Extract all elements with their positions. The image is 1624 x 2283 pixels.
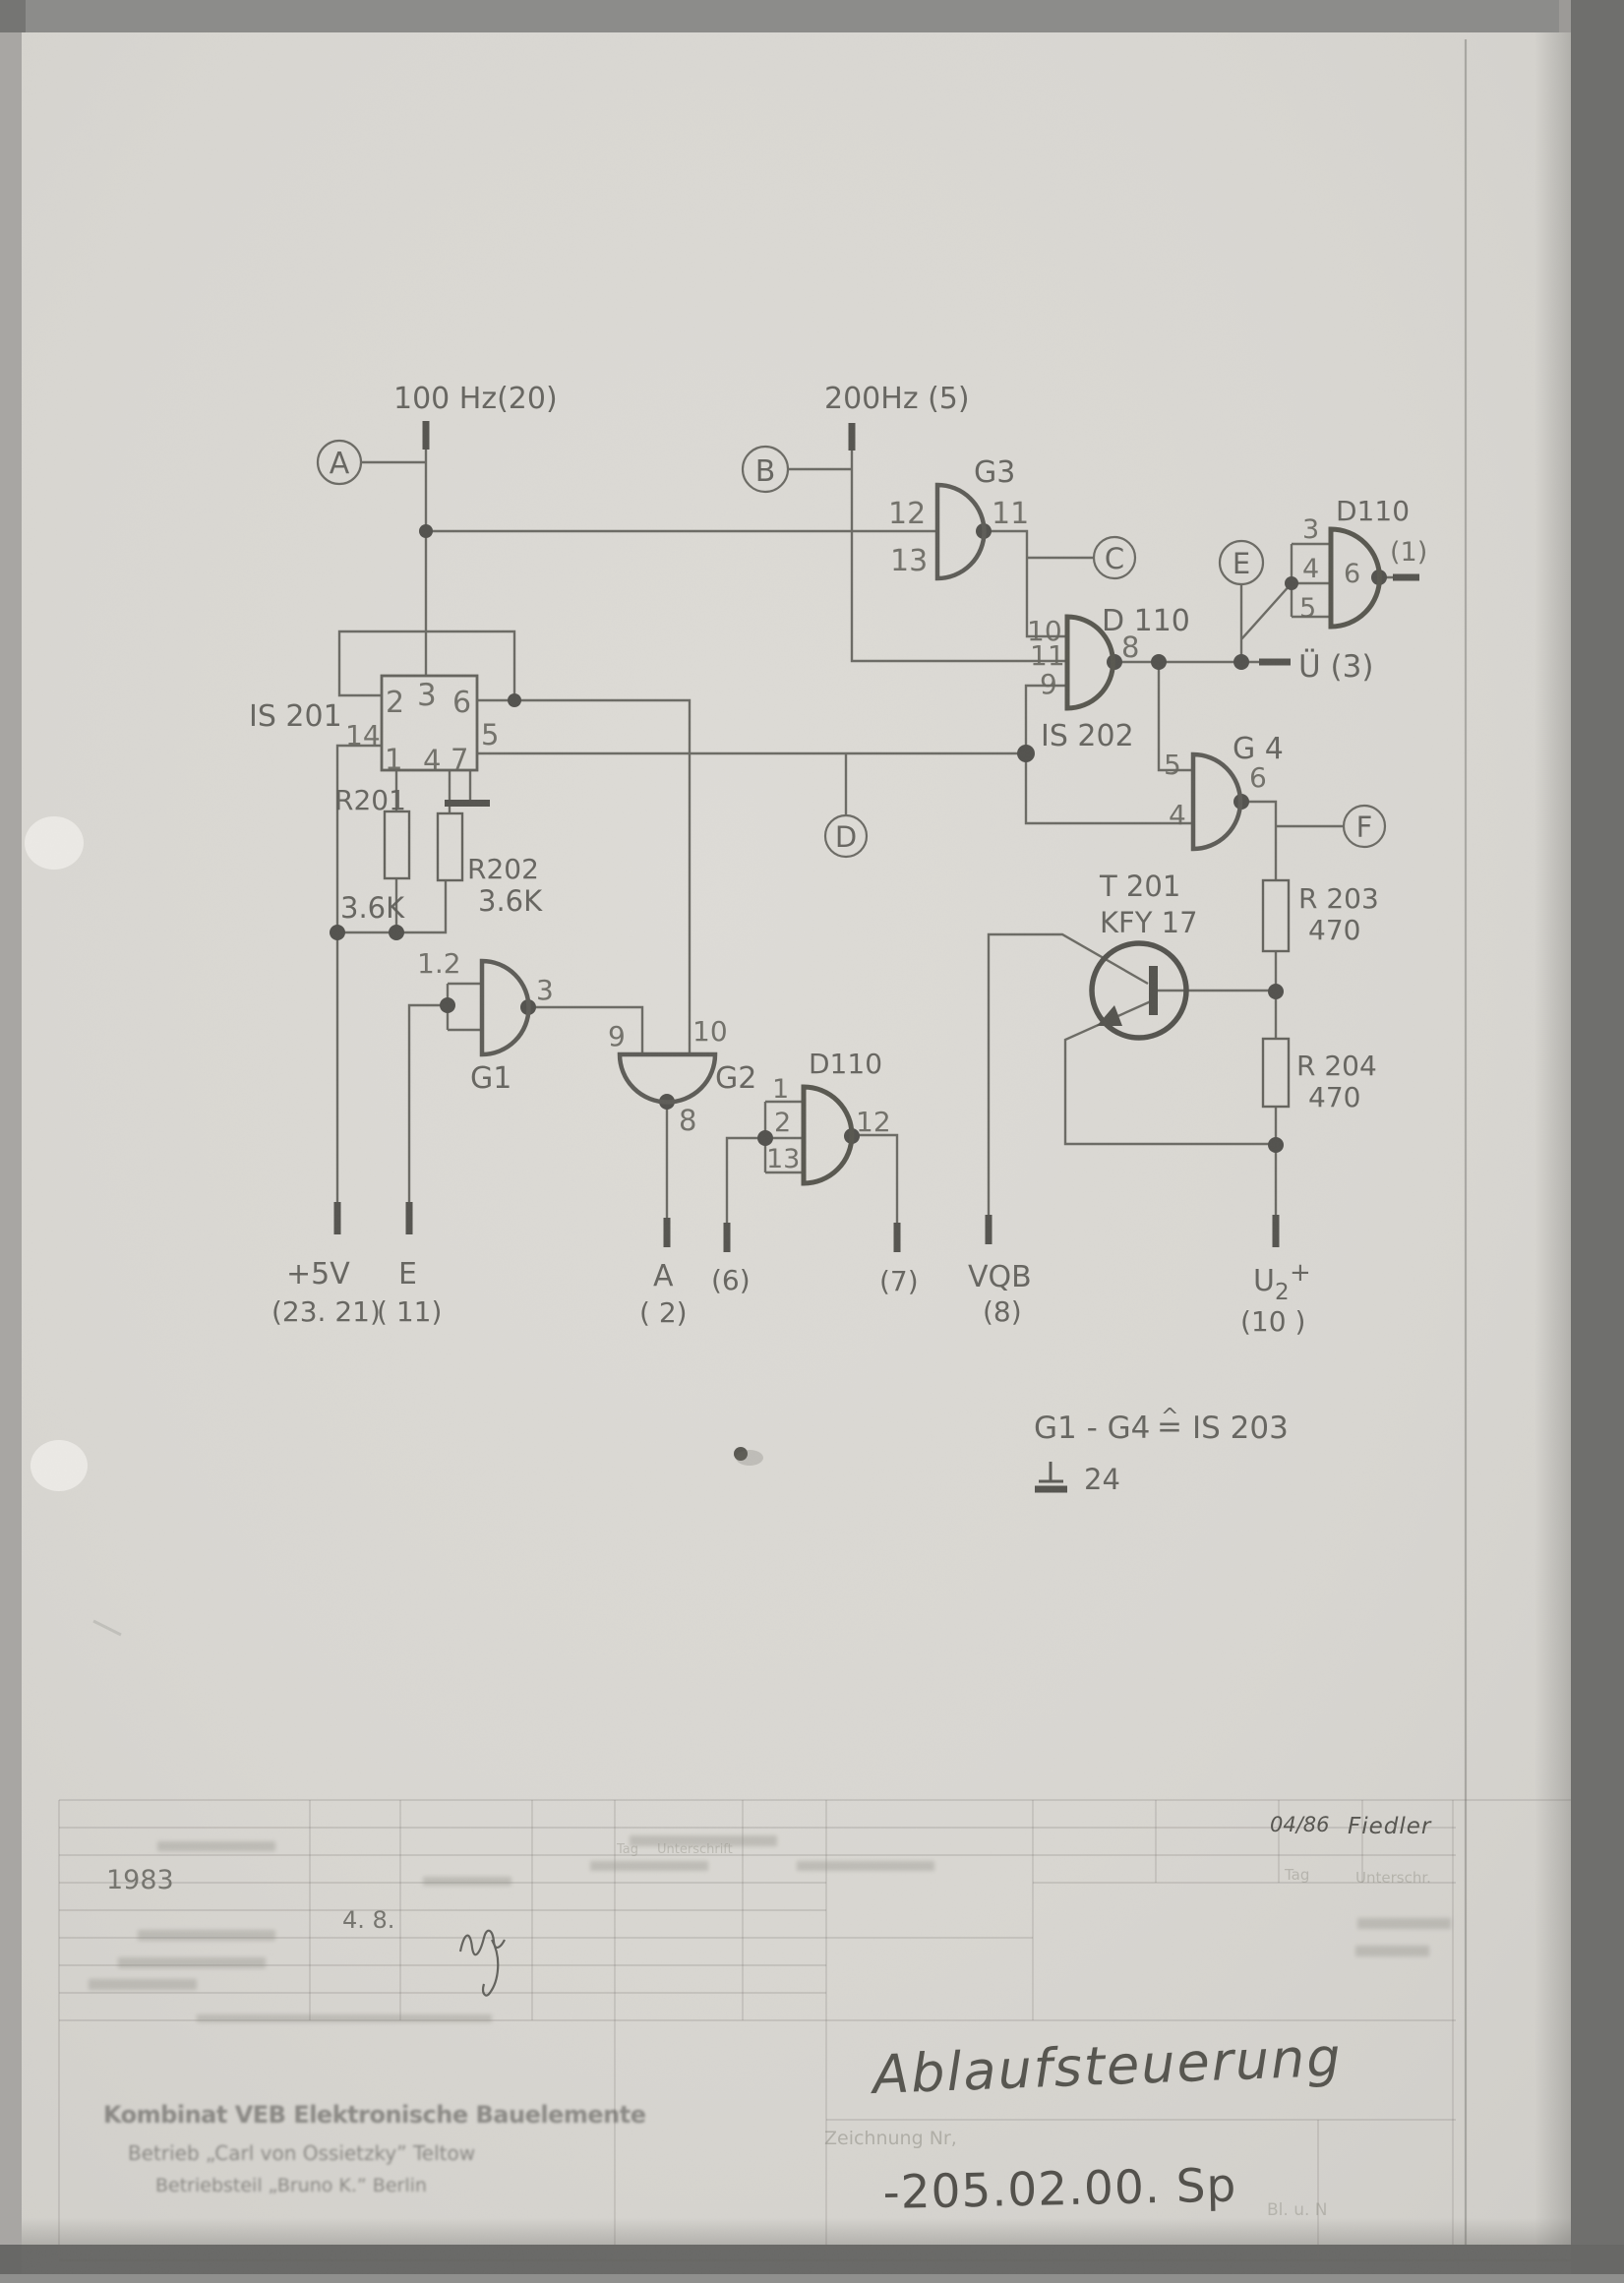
paper-grain-overlay: [22, 32, 1571, 2274]
schematic-canvas: 100 Hz(20) 200Hz (5) A B C D E F G3 12 1…: [0, 0, 1624, 2283]
scan-bottom-strip: [0, 2274, 1624, 2283]
scanned-schematic-page: 100 Hz(20) 200Hz (5) A B C D E F G3 12 1…: [0, 0, 1624, 2283]
